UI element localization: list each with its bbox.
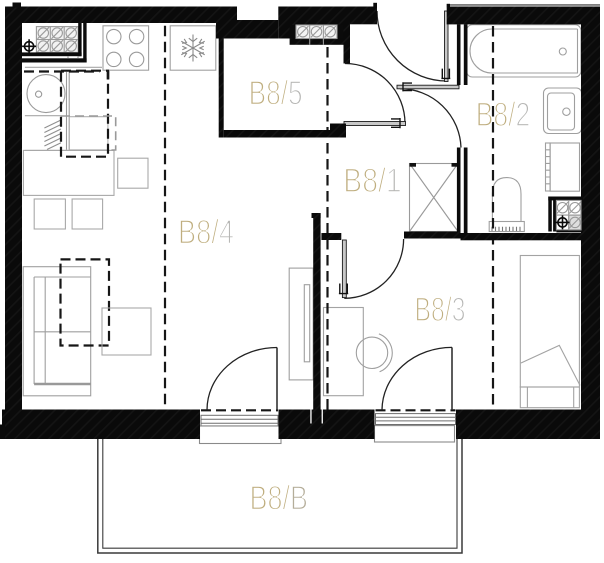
svg-text:B8/1: B8/1 — [343, 162, 401, 200]
svg-text:B8/3: B8/3 — [415, 291, 466, 329]
svg-text:B8/B: B8/B — [250, 480, 309, 518]
svg-text:B8/5: B8/5 — [249, 74, 303, 112]
svg-text:B8/2: B8/2 — [476, 96, 531, 134]
svg-text:B8/4: B8/4 — [178, 213, 234, 251]
